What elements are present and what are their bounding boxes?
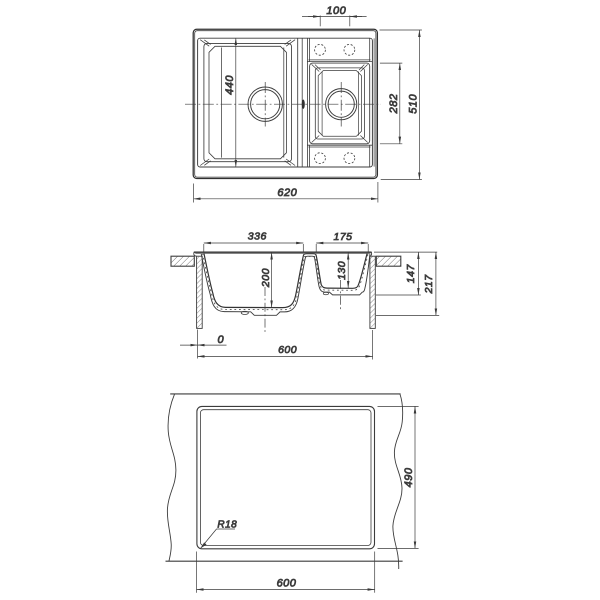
svg-text:336: 336 [248, 231, 267, 243]
svg-text:600: 600 [278, 344, 297, 356]
svg-text:217: 217 [423, 274, 435, 295]
svg-text:147: 147 [405, 264, 417, 284]
svg-text:440: 440 [224, 75, 236, 95]
svg-text:600: 600 [277, 577, 297, 589]
svg-text:200: 200 [260, 268, 272, 288]
svg-text:175: 175 [333, 231, 352, 243]
svg-text:R18: R18 [217, 519, 237, 530]
svg-text:510: 510 [407, 93, 419, 113]
svg-text:282: 282 [388, 94, 400, 115]
svg-text:130: 130 [336, 261, 348, 280]
svg-text:0: 0 [217, 334, 224, 346]
svg-text:620: 620 [277, 187, 297, 199]
svg-text:100: 100 [326, 5, 346, 17]
svg-text:490: 490 [403, 467, 415, 487]
